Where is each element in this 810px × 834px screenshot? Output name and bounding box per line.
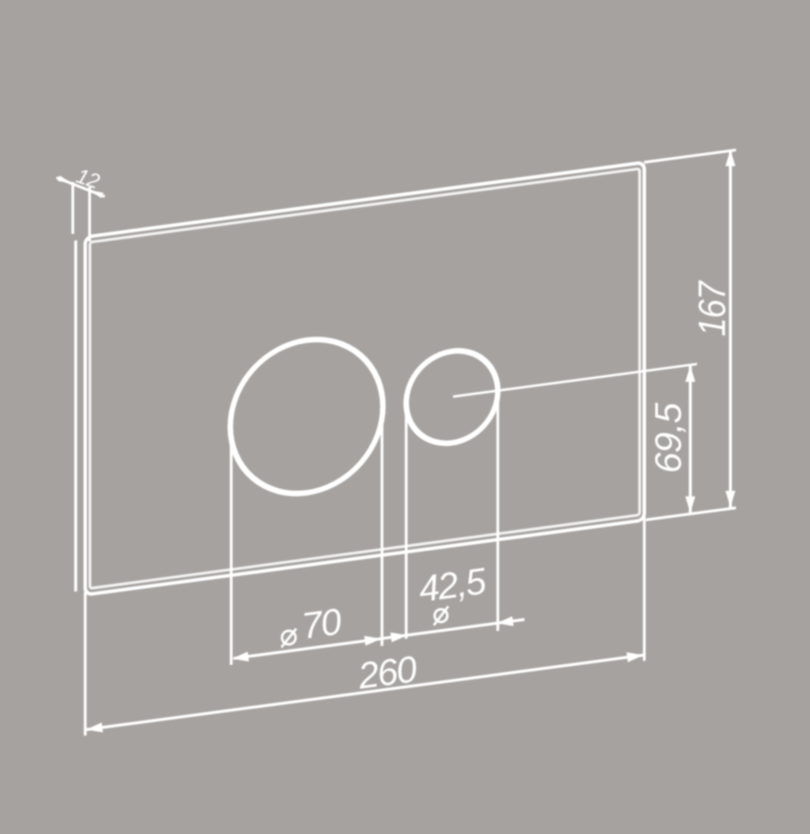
svg-text:167: 167: [690, 279, 733, 336]
svg-text:260: 260: [355, 648, 420, 697]
svg-text:70: 70: [299, 601, 344, 647]
svg-text:69,5: 69,5: [647, 402, 689, 473]
